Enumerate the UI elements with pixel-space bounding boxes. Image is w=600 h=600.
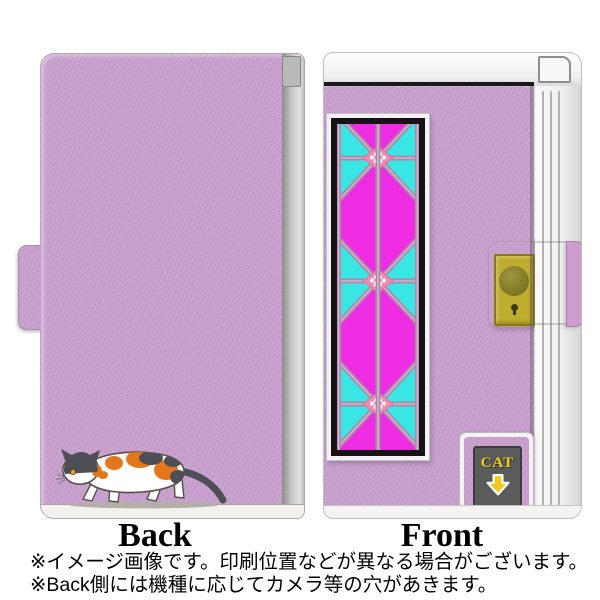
- keyhole-stem: [513, 309, 516, 315]
- magnet-button: [499, 266, 529, 296]
- cat-shadow: [70, 502, 218, 509]
- note-line-2: ※Back側には機種に応じてカメラ等の穴があきます。: [30, 574, 497, 597]
- product-image: CAT Back Front ※イメージ画像です。印刷位置などが異なる場合がござ…: [0, 0, 600, 600]
- cat-eye: [70, 469, 75, 474]
- spine-ridge-line: [558, 91, 560, 519]
- down-arrow-icon: [485, 474, 511, 496]
- back-case: [40, 53, 305, 519]
- calico-cat-illustration: [56, 446, 236, 510]
- clasp-strap-end: [566, 241, 582, 327]
- cat-window-label: CAT: [475, 455, 520, 472]
- spine-top-cap: [538, 56, 571, 83]
- stained-glass-panel: [326, 113, 430, 461]
- back-spine-edge: [282, 54, 304, 518]
- spine-ridge-line: [550, 91, 552, 519]
- clasp-plate: [494, 254, 535, 326]
- front-case: CAT: [323, 52, 582, 519]
- front-cover-gap: [324, 82, 534, 86]
- back-top-notch: [282, 56, 301, 87]
- spine-ridge-line: [542, 91, 544, 519]
- front-caption: Front: [372, 517, 512, 555]
- asanoha-pattern: [337, 114, 419, 450]
- back-caption: Back: [85, 517, 225, 555]
- cat-ears-cap: [61, 449, 100, 474]
- note-line-1: ※イメージ画像です。印刷位置などが異なる場合がございます。: [30, 551, 588, 574]
